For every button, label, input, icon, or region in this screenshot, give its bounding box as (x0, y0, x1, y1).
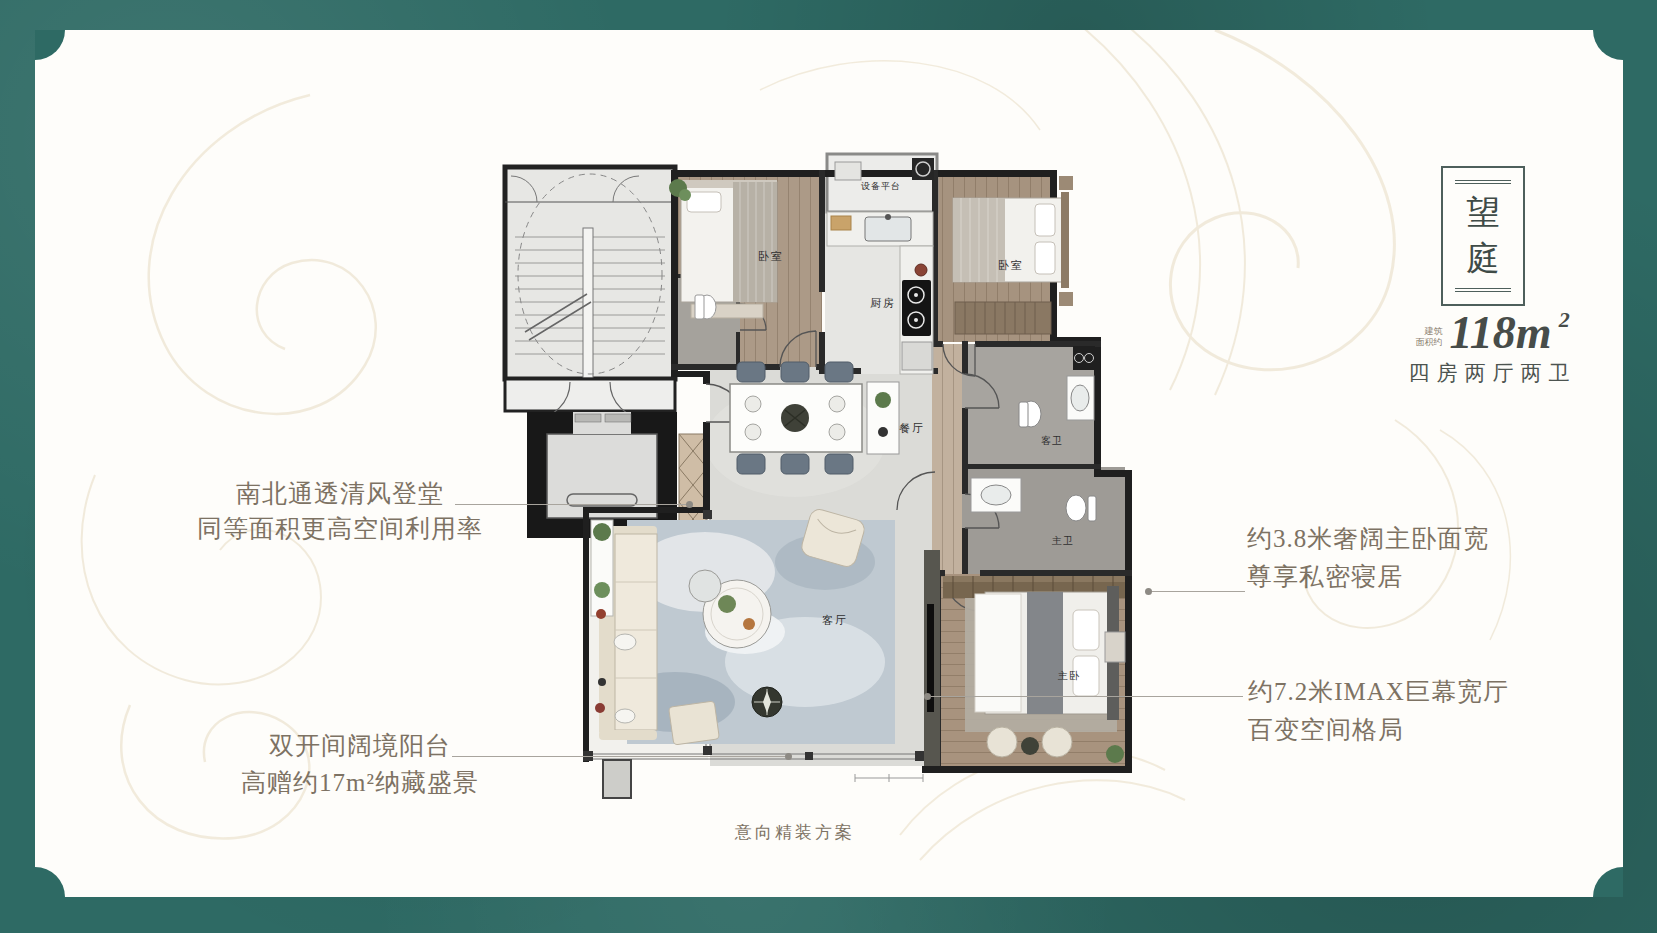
leader-dot (686, 501, 693, 508)
annotation-right-bottom: 约7.2米IMAX巨幕宽厅 百变空间格局 (1248, 673, 1509, 749)
toilet (1066, 495, 1086, 521)
label-bedroom-a: 卧室 (758, 250, 784, 262)
area-prefix: 建筑 面积约 (1415, 326, 1442, 348)
stair-landing (505, 379, 675, 411)
plan-caption: 意向精装方案 (690, 821, 900, 844)
area-value: 118m (1449, 310, 1551, 356)
dining-chair (737, 362, 765, 382)
plaque-double-rule (1455, 288, 1511, 292)
ottoman (669, 701, 720, 745)
dimension-ticks (855, 774, 923, 782)
pillow (1035, 204, 1055, 236)
page: 设备平台 卧室 厨房 卧室 餐厅 客卫 主卫 客厅 主卧 南北通透清风登堂 同等… (0, 0, 1657, 933)
label-kitchen: 厨房 (870, 297, 896, 309)
elevator (527, 412, 677, 538)
balcony-step (603, 760, 631, 798)
label-master-bedroom: 主卧 (1057, 670, 1080, 681)
label-living: 客厅 (822, 614, 848, 626)
label-master-bath: 主卫 (1051, 535, 1074, 546)
label-dining: 餐厅 (899, 422, 925, 434)
kitchen-sink (865, 217, 911, 241)
leader-line-living (931, 696, 1243, 697)
floor-plan: 设备平台 卧室 厨房 卧室 餐厅 客卫 主卫 客厅 主卧 (475, 142, 1155, 802)
leader-line-master-bedroom (1151, 591, 1245, 592)
pillow (687, 192, 721, 212)
project-name-plaque: 望 庭 (1441, 166, 1525, 306)
label-bedroom-b: 卧室 (998, 259, 1024, 271)
pouf (987, 727, 1017, 757)
leader-dot (1145, 588, 1152, 595)
label-guest-bath: 客卫 (1041, 435, 1063, 446)
area-spec: 建筑 面积约 118m 2 (1375, 310, 1610, 356)
annotation-left-top: 南北通透清风登堂 同等面积更高空间利用率 (145, 476, 535, 546)
label-equipment-platform: 设备平台 (861, 181, 901, 191)
leader-dot (924, 693, 931, 700)
bedroom-a-furniture (669, 179, 777, 319)
annotation-line: 双开间阔境阳台 (160, 727, 560, 764)
room-layout-spec: 四房两厅两卫 (1370, 359, 1615, 387)
stairwell (505, 167, 675, 419)
content-panel: 设备平台 卧室 厨房 卧室 餐厅 客卫 主卫 客厅 主卧 南北通透清风登堂 同等… (35, 30, 1623, 897)
plaque-double-rule (1455, 180, 1511, 184)
area-superscript: 2 (1559, 307, 1570, 333)
annotation-line: 约7.2米IMAX巨幕宽厅 (1248, 673, 1509, 711)
annotation-left-bottom: 双开间阔境阳台 高赠约17m²纳藏盛景 (160, 727, 560, 801)
plaque-char-bottom: 庭 (1466, 238, 1500, 280)
annotation-line: 高赠约17m²纳藏盛景 (160, 764, 560, 801)
annotation-line: 约3.8米奢阔主卧面宽 (1247, 520, 1489, 558)
annotation-right-top: 约3.8米奢阔主卧面宽 尊享私密寝居 (1247, 520, 1489, 596)
annotation-line: 尊享私密寝居 (1247, 558, 1489, 596)
plant (1106, 745, 1124, 763)
wardrobe (955, 302, 1051, 334)
plant (593, 523, 611, 541)
leader-dot (785, 753, 792, 760)
annotation-line: 同等面积更高空间利用率 (145, 511, 535, 546)
annotation-line: 百变空间格局 (1248, 711, 1509, 749)
living-furniture (599, 507, 940, 766)
plaque-char-top: 望 (1466, 192, 1500, 234)
pillow (1073, 610, 1099, 650)
annotation-line: 南北通透清风登堂 (145, 476, 535, 511)
